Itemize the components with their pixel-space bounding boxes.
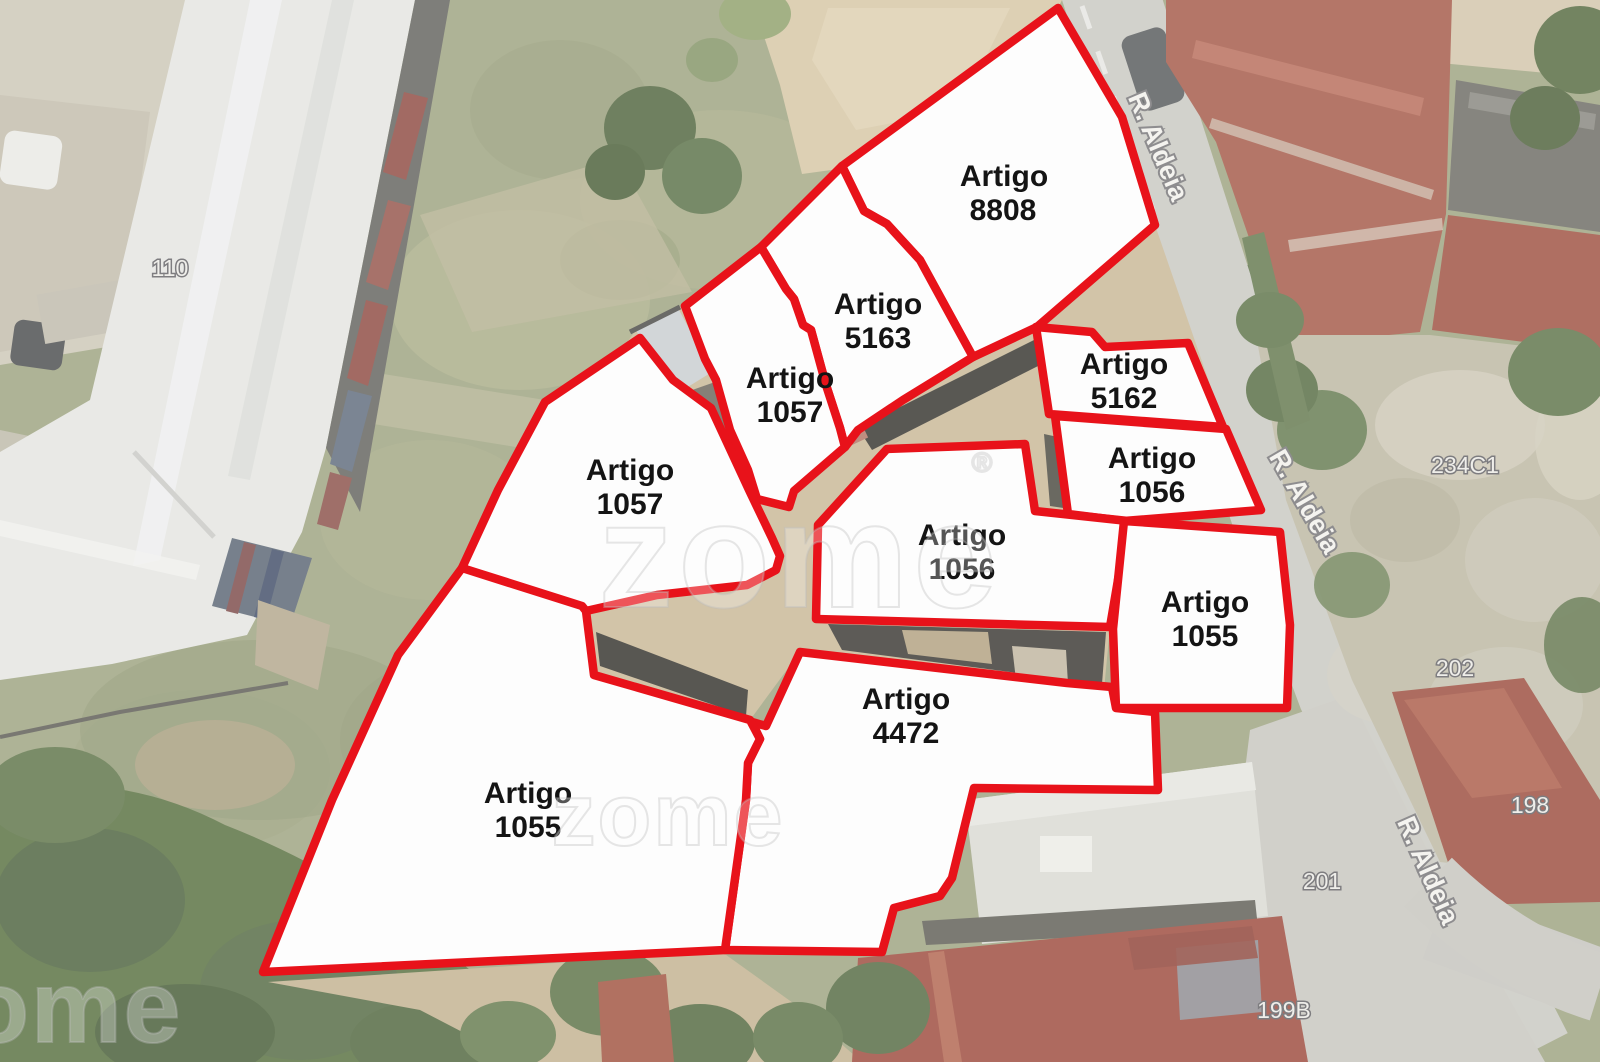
svg-text:Artigo: Artigo bbox=[1108, 442, 1196, 475]
svg-text:1057: 1057 bbox=[757, 396, 824, 429]
svg-text:1056: 1056 bbox=[1119, 476, 1186, 509]
svg-text:zome: zome bbox=[598, 471, 1001, 639]
svg-text:zome: zome bbox=[0, 950, 182, 1062]
svg-text:Artigo: Artigo bbox=[1080, 348, 1168, 381]
svg-text:5163: 5163 bbox=[845, 322, 912, 355]
svg-text:5162: 5162 bbox=[1091, 382, 1158, 415]
svg-text:110: 110 bbox=[152, 255, 189, 281]
svg-text:Artigo: Artigo bbox=[834, 288, 922, 321]
svg-text:8808: 8808 bbox=[970, 194, 1037, 227]
svg-text:zome: zome bbox=[552, 765, 785, 864]
svg-text:Artigo: Artigo bbox=[862, 683, 950, 716]
svg-text:201: 201 bbox=[1303, 868, 1341, 894]
svg-text:202: 202 bbox=[1436, 655, 1474, 681]
svg-text:®: ® bbox=[972, 447, 993, 478]
svg-text:4472: 4472 bbox=[873, 717, 940, 750]
svg-text:198: 198 bbox=[1511, 792, 1549, 818]
svg-text:1055: 1055 bbox=[1172, 620, 1239, 653]
svg-text:199B: 199B bbox=[1257, 997, 1311, 1023]
svg-text:234C1: 234C1 bbox=[1431, 452, 1499, 478]
svg-text:Artigo: Artigo bbox=[1161, 586, 1249, 619]
svg-text:Artigo: Artigo bbox=[960, 160, 1048, 193]
svg-text:Artigo: Artigo bbox=[746, 362, 834, 395]
